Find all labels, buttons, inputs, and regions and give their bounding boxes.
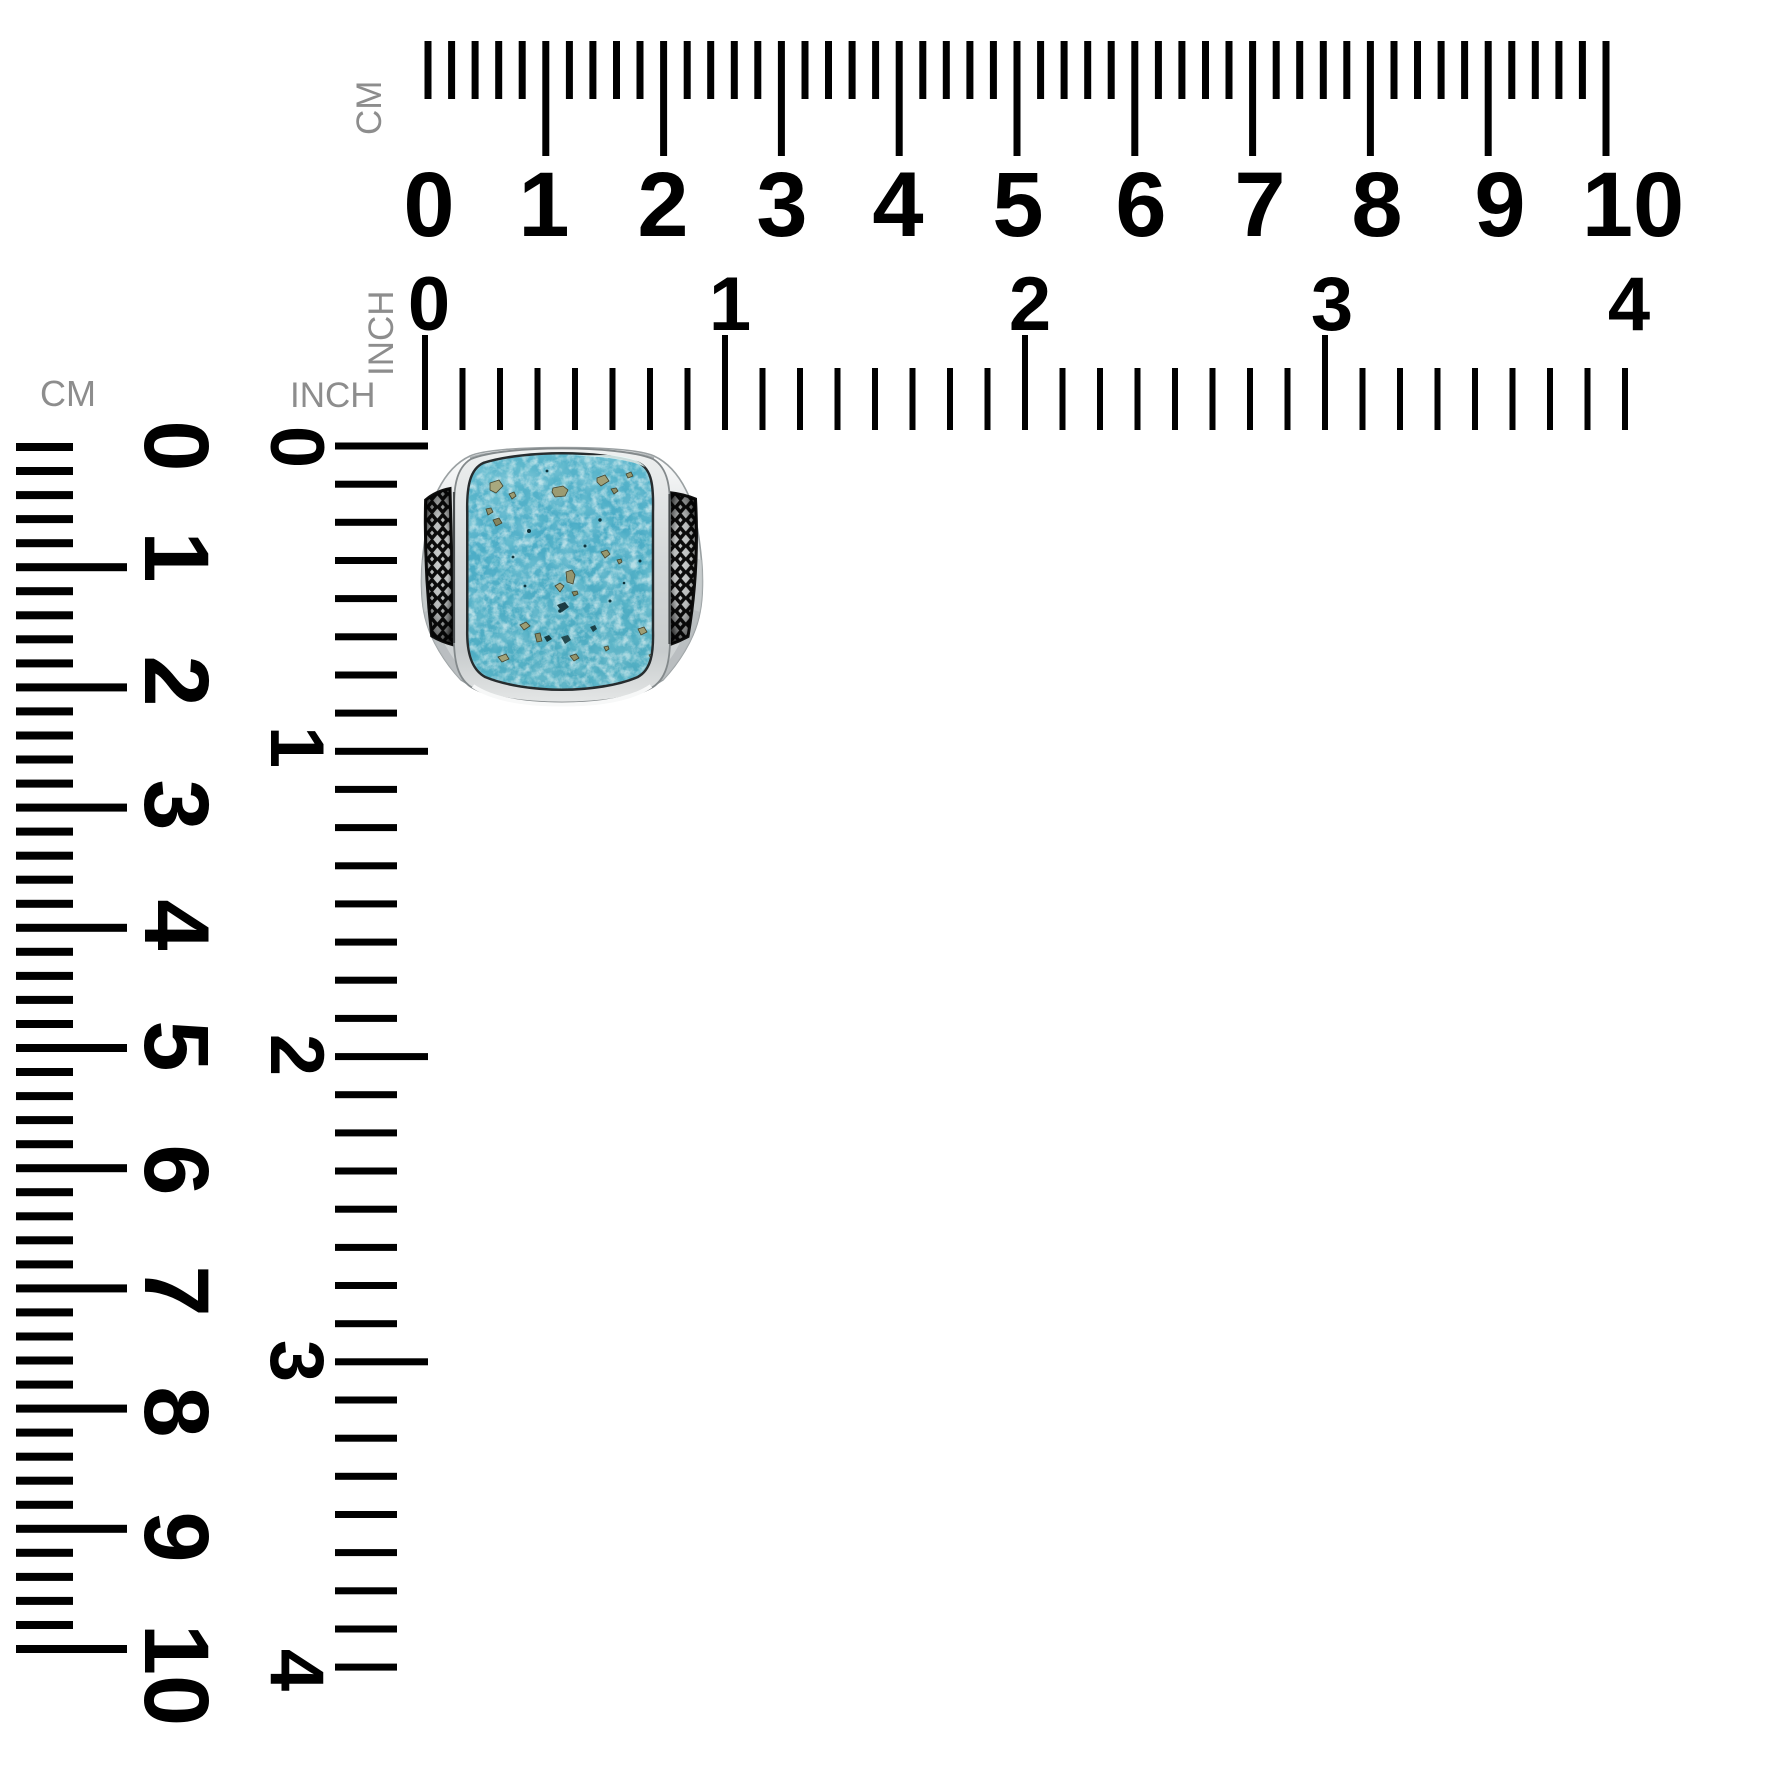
svg-text:2: 2 — [637, 154, 688, 256]
svg-text:5: 5 — [125, 1020, 227, 1071]
svg-text:INCH: INCH — [290, 376, 376, 415]
svg-text:0: 0 — [125, 420, 227, 471]
svg-text:0: 0 — [408, 262, 450, 347]
svg-text:1: 1 — [709, 262, 751, 347]
svg-text:1: 1 — [125, 531, 227, 582]
svg-text:6: 6 — [1115, 154, 1166, 256]
svg-text:0: 0 — [403, 154, 454, 256]
svg-text:INCH: INCH — [362, 290, 401, 376]
svg-text:3: 3 — [125, 779, 227, 830]
svg-text:8: 8 — [1351, 154, 1402, 256]
svg-text:3: 3 — [1311, 262, 1353, 347]
svg-text:4: 4 — [254, 1649, 339, 1691]
svg-text:7: 7 — [125, 1265, 227, 1316]
svg-text:4: 4 — [125, 899, 227, 950]
svg-text:0: 0 — [254, 426, 339, 468]
svg-text:6: 6 — [125, 1144, 227, 1195]
svg-text:CM: CM — [40, 373, 96, 414]
svg-text:2: 2 — [254, 1034, 339, 1076]
svg-text:CM: CM — [350, 81, 389, 135]
svg-text:9: 9 — [1474, 154, 1525, 256]
svg-text:4: 4 — [872, 154, 923, 256]
svg-text:1: 1 — [518, 154, 569, 256]
svg-text:10: 10 — [125, 1624, 227, 1726]
svg-text:8: 8 — [125, 1386, 227, 1437]
svg-text:9: 9 — [125, 1511, 227, 1562]
svg-text:7: 7 — [1234, 154, 1285, 256]
svg-text:3: 3 — [756, 154, 807, 256]
svg-text:3: 3 — [254, 1340, 339, 1382]
svg-text:2: 2 — [125, 655, 227, 706]
svg-text:10: 10 — [1582, 154, 1684, 256]
svg-text:2: 2 — [1009, 262, 1051, 347]
svg-text:4: 4 — [1608, 262, 1650, 347]
svg-text:5: 5 — [992, 154, 1043, 256]
svg-text:1: 1 — [254, 726, 339, 768]
